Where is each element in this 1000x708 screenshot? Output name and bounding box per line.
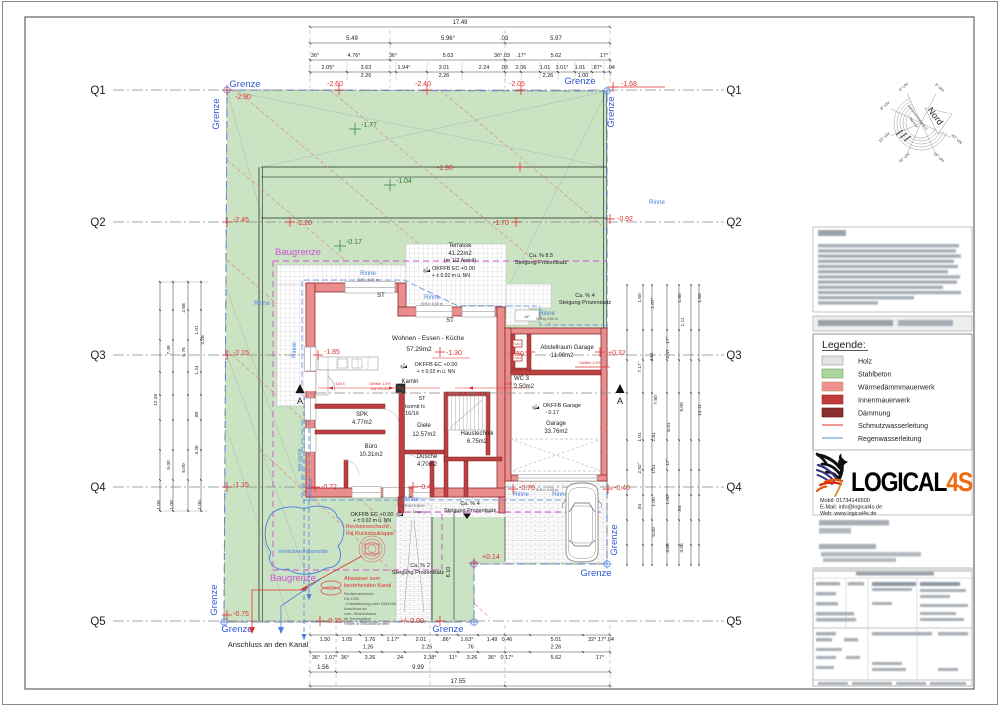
svg-text:3.26: 3.26 bbox=[467, 655, 478, 661]
svg-text:SW DN100: SW DN100 bbox=[371, 387, 390, 391]
svg-text:WC 3: WC 3 bbox=[514, 376, 530, 382]
svg-text:(m 1/2 Anteil): (m 1/2 Anteil) bbox=[444, 258, 477, 264]
svg-text:1.94°: 1.94° bbox=[398, 65, 411, 71]
svg-text:36°: 36° bbox=[488, 655, 496, 661]
svg-text:1.00: 1.00 bbox=[651, 497, 657, 507]
svg-text:+0.32: +0.32 bbox=[608, 350, 626, 357]
svg-text:Rinne: Rinne bbox=[360, 271, 376, 277]
svg-text:LOGICAL4S: LOGICAL4S bbox=[851, 467, 972, 497]
svg-text:Steigung Prozentsatz: Steigung Prozentsatz bbox=[444, 508, 497, 514]
svg-text:1.50: 1.50 bbox=[677, 293, 683, 303]
svg-text:2.68: 2.68 bbox=[181, 303, 187, 313]
svg-text:1.01: 1.01 bbox=[637, 432, 643, 442]
svg-text:Höhen in Örtlichkeit prüfen: Höhen in Örtlichkeit prüfen bbox=[344, 622, 389, 626]
svg-text:Rinne: Rinne bbox=[403, 497, 419, 503]
svg-text:1.07°: 1.07° bbox=[650, 297, 656, 308]
svg-text:33.76m2: 33.76m2 bbox=[544, 429, 568, 435]
svg-text:36°: 36° bbox=[312, 655, 320, 661]
svg-text:-2.40: -2.40 bbox=[415, 81, 431, 88]
svg-text:4.76°: 4.76° bbox=[348, 53, 361, 59]
svg-text:7.49: 7.49 bbox=[166, 345, 172, 355]
svg-text:Q3: Q3 bbox=[90, 350, 105, 362]
svg-text:Mobil: 01734146500: Mobil: 01734146500 bbox=[820, 498, 870, 504]
svg-text:-2.20: -2.20 bbox=[296, 220, 312, 227]
svg-text:1.07°: 1.07° bbox=[325, 655, 338, 661]
svg-text:Revisionsschacht: Revisionsschacht bbox=[344, 592, 374, 596]
svg-text:- Entwässerung nach DIN1638 -: - Entwässerung nach DIN1638 - bbox=[344, 602, 399, 606]
svg-text:SAN 5: SAN 5 bbox=[335, 382, 344, 386]
svg-text:6.76: 6.76 bbox=[181, 347, 187, 357]
svg-text:-2.15: -2.15 bbox=[233, 350, 249, 357]
svg-text:Ca. % 2: Ca. % 2 bbox=[410, 563, 430, 569]
svg-text:-0.49: -0.49 bbox=[419, 484, 435, 491]
svg-text:B.R.i= 0.00 m: B.R.i= 0.00 m bbox=[421, 302, 442, 306]
svg-text:SPK: SPK bbox=[356, 412, 368, 418]
svg-text:Wärmedämmmauerwerk: Wärmedämmmauerwerk bbox=[858, 385, 935, 392]
svg-text:Ca. % 8.5: Ca. % 8.5 bbox=[529, 253, 553, 259]
svg-text:1.24: 1.24 bbox=[194, 365, 200, 375]
svg-text:Abstellraum Garage: Abstellraum Garage bbox=[540, 345, 594, 351]
svg-text:1.76: 1.76 bbox=[365, 637, 376, 643]
svg-text:36°: 36° bbox=[311, 53, 319, 59]
svg-text:+/- 0.00: +/- 0.00 bbox=[400, 618, 424, 625]
svg-text:Garage: Garage bbox=[546, 421, 567, 427]
svg-text:Ca. % 4: Ca. % 4 bbox=[460, 501, 480, 507]
svg-text:Rinne: Rinne bbox=[649, 200, 665, 206]
svg-text:17.49: 17.49 bbox=[452, 20, 468, 26]
svg-text:Grenze: Grenze bbox=[229, 79, 260, 90]
svg-text:Innenmauerwerk: Innenmauerwerk bbox=[858, 398, 911, 405]
svg-text:Baugrenze: Baugrenze bbox=[275, 247, 321, 258]
svg-text:6.75m2: 6.75m2 bbox=[467, 439, 488, 445]
svg-text:Stahlbeton: Stahlbeton bbox=[858, 372, 892, 379]
svg-text:1.00: 1.00 bbox=[156, 500, 162, 510]
svg-text:Gefälle 1.5%: Gefälle 1.5% bbox=[579, 361, 601, 365]
svg-text:Anschluss an den Kanal: Anschluss an den Kanal bbox=[228, 640, 309, 649]
svg-text:bestehenden Kanal: bestehenden Kanal bbox=[344, 583, 391, 589]
svg-text:10.31m2: 10.31m2 bbox=[359, 452, 383, 458]
svg-text:5.49: 5.49 bbox=[346, 36, 358, 42]
svg-text:16/16: 16/16 bbox=[405, 411, 419, 417]
svg-text:-0.17: -0.17 bbox=[346, 239, 362, 246]
svg-text:1.51: 1.51 bbox=[651, 464, 657, 474]
svg-text:Q1: Q1 bbox=[726, 85, 741, 97]
svg-text:A: A bbox=[617, 396, 623, 406]
svg-text:.80: .80 bbox=[194, 411, 200, 418]
svg-text:Gefälle 1.5%: Gefälle 1.5% bbox=[369, 382, 391, 386]
svg-text:-1.30: -1.30 bbox=[446, 350, 462, 357]
svg-text:.03: .03 bbox=[500, 36, 509, 42]
svg-text:4.70m2: 4.70m2 bbox=[417, 462, 438, 468]
svg-text:5.00: 5.00 bbox=[166, 460, 172, 470]
svg-text:-2.05: -2.05 bbox=[509, 81, 525, 88]
svg-text:36°.03: 36°.03 bbox=[494, 53, 510, 59]
svg-text:Q1: Q1 bbox=[90, 85, 105, 97]
svg-text:5.62: 5.62 bbox=[551, 53, 562, 59]
svg-text:2.01: 2.01 bbox=[416, 637, 427, 643]
svg-text:-1.90: -1.90 bbox=[437, 165, 453, 172]
svg-text:+ ± 0.02 m ü. NN: + ± 0.02 m ü. NN bbox=[432, 273, 470, 279]
svg-text:3.01: 3.01 bbox=[439, 65, 450, 71]
svg-text:SAN: SAN bbox=[514, 342, 520, 346]
svg-text:-1.85: -1.85 bbox=[324, 349, 340, 356]
svg-text:Diele: Diele bbox=[417, 423, 431, 429]
svg-text:Isomit Ic: Isomit Ic bbox=[405, 404, 426, 410]
svg-text:ST: ST bbox=[377, 293, 385, 299]
svg-text:.03: .03 bbox=[500, 65, 508, 71]
svg-text:Q4: Q4 bbox=[726, 482, 742, 494]
svg-text:Terrasse: Terrasse bbox=[448, 243, 472, 249]
svg-text:7.90: 7.90 bbox=[653, 395, 659, 405]
svg-text:1.50: 1.50 bbox=[637, 293, 643, 303]
svg-text:OKFFB EC +0.00: OKFFB EC +0.00 bbox=[432, 266, 475, 272]
svg-text:1.00: 1.00 bbox=[578, 73, 589, 79]
svg-text:Steigung Prozentsatz: Steigung Prozentsatz bbox=[392, 570, 445, 576]
svg-text:-1.04: -1.04 bbox=[396, 178, 412, 185]
svg-text:3.06: 3.06 bbox=[679, 543, 685, 553]
svg-text:1.01: 1.01 bbox=[194, 325, 200, 335]
svg-text:5.00: 5.00 bbox=[181, 463, 187, 473]
svg-text:5.96°: 5.96° bbox=[441, 36, 456, 42]
svg-text:1.00: 1.00 bbox=[665, 495, 671, 505]
svg-text:B.R.i= 0.00 m: B.R.i= 0.00 m bbox=[536, 317, 557, 321]
svg-text:Rinne: Rinne bbox=[254, 301, 270, 307]
svg-text:.94: .94 bbox=[637, 503, 643, 510]
svg-text:Haustechnik: Haustechnik bbox=[460, 431, 494, 437]
svg-text:Q5: Q5 bbox=[726, 616, 741, 628]
svg-text:2.26: 2.26 bbox=[422, 645, 433, 651]
svg-text:.87°: .87° bbox=[592, 65, 602, 71]
svg-text:17°: 17° bbox=[596, 655, 604, 661]
svg-text:DN 1000: DN 1000 bbox=[344, 597, 359, 601]
svg-text:ST: ST bbox=[446, 318, 454, 324]
svg-text:-0.70: -0.70 bbox=[519, 485, 535, 492]
svg-text:Grenze: Grenze bbox=[221, 624, 252, 635]
svg-text:OKFFB EC +0.00: OKFFB EC +0.00 bbox=[415, 362, 458, 368]
svg-text:1.63°: 1.63° bbox=[461, 637, 474, 643]
svg-text:Grenze: Grenze bbox=[609, 524, 620, 555]
svg-text:-1.15: -1.15 bbox=[233, 482, 249, 489]
svg-text:im Trennsystem: im Trennsystem bbox=[344, 617, 371, 621]
svg-text:1.01°: 1.01° bbox=[556, 65, 569, 71]
svg-text:-0.72: -0.72 bbox=[321, 484, 337, 491]
svg-text:mit Rückstauklappe: mit Rückstauklappe bbox=[346, 531, 394, 537]
svg-text:A: A bbox=[297, 396, 303, 406]
svg-text:5.01: 5.01 bbox=[551, 637, 562, 643]
svg-text:Büro: Büro bbox=[365, 444, 378, 450]
svg-text:-0.35: -0.35 bbox=[326, 618, 342, 625]
svg-text:B.R.üH 0.00 m: B.R.üH 0.00 m bbox=[402, 504, 425, 508]
svg-text:36°: 36° bbox=[341, 655, 349, 661]
svg-text:5.63: 5.63 bbox=[443, 53, 454, 59]
svg-text:9.00: 9.00 bbox=[679, 402, 685, 412]
svg-text:Grenze: Grenze bbox=[209, 584, 220, 615]
svg-text:1.01: 1.01 bbox=[540, 65, 551, 71]
svg-text:Rinne: Rinne bbox=[292, 342, 298, 358]
svg-text:AP: AP bbox=[524, 314, 530, 319]
svg-text:2.26: 2.26 bbox=[439, 73, 450, 79]
svg-text:1.00: 1.00 bbox=[169, 500, 175, 510]
svg-text:Regenwasserleitung: Regenwasserleitung bbox=[858, 436, 922, 443]
svg-text:Dusche: Dusche bbox=[417, 454, 438, 460]
svg-text:1.17°: 1.17° bbox=[387, 637, 400, 643]
svg-text:Eingang: Eingang bbox=[413, 510, 426, 514]
svg-text:Q5: Q5 bbox=[90, 616, 105, 628]
svg-text:B.R.i= 0.00 m: B.R.i= 0.00 m bbox=[357, 278, 378, 282]
svg-text:Dämmung: Dämmung bbox=[858, 411, 890, 418]
svg-text:1.01: 1.01 bbox=[575, 65, 586, 71]
svg-text:Wohnen - Essen - Küche: Wohnen - Essen - Küche bbox=[392, 335, 465, 342]
svg-text:Grenze: Grenze bbox=[432, 624, 463, 635]
svg-text:24: 24 bbox=[397, 655, 403, 661]
svg-text:3.26: 3.26 bbox=[365, 655, 376, 661]
svg-text:4.77m2: 4.77m2 bbox=[352, 420, 373, 426]
svg-text:Q2: Q2 bbox=[726, 217, 741, 229]
svg-text:.17°: .17° bbox=[516, 53, 526, 59]
svg-text:.04: .04 bbox=[607, 65, 615, 71]
svg-text:- 0.17: - 0.17 bbox=[545, 410, 559, 416]
svg-text:1.50: 1.50 bbox=[697, 293, 703, 303]
svg-text:Anschluss an: Anschluss an bbox=[344, 607, 367, 611]
svg-text:17.55: 17.55 bbox=[450, 679, 466, 685]
svg-text:ST: ST bbox=[418, 396, 426, 402]
svg-text:Versickerungsmulde: Versickerungsmulde bbox=[278, 549, 328, 555]
svg-text:17°: 17° bbox=[665, 458, 671, 465]
svg-text:5.97: 5.97 bbox=[550, 36, 562, 42]
svg-text:2.24: 2.24 bbox=[479, 65, 490, 71]
svg-text:2.26: 2.26 bbox=[361, 73, 372, 79]
svg-text:-1.77: -1.77 bbox=[361, 122, 377, 129]
svg-text:-0.92: -0.92 bbox=[617, 216, 633, 223]
svg-text:1.50: 1.50 bbox=[320, 637, 331, 643]
svg-text:11.00m2: 11.00m2 bbox=[551, 353, 575, 359]
svg-text:Revisionsschacht: Revisionsschacht bbox=[346, 524, 389, 530]
svg-text:-0.75: -0.75 bbox=[233, 611, 249, 618]
svg-text:OKFFB Garage: OKFFB Garage bbox=[543, 403, 581, 409]
svg-text:Grenze: Grenze bbox=[580, 568, 611, 579]
svg-text:Abwasser zum: Abwasser zum bbox=[344, 576, 380, 582]
svg-text:Grenze: Grenze bbox=[211, 98, 222, 129]
svg-text:1.49: 1.49 bbox=[487, 637, 498, 643]
svg-text:2.92°: 2.92° bbox=[637, 462, 643, 473]
svg-text:Ca. % 4: Ca. % 4 bbox=[575, 293, 595, 299]
svg-text:Web: www.logical4s.de: Web: www.logical4s.de bbox=[820, 511, 876, 517]
svg-text:0.17°: 0.17° bbox=[501, 655, 514, 661]
svg-text:Steigung Prozentsatz: Steigung Prozentsatz bbox=[559, 300, 612, 306]
svg-text:-1.70: -1.70 bbox=[493, 220, 509, 227]
svg-text:17°: 17° bbox=[665, 336, 671, 343]
svg-text:11°: 11° bbox=[449, 655, 457, 661]
svg-text:E-Mail: info@logical4s.de: E-Mail: info@logical4s.de bbox=[820, 505, 882, 511]
svg-text:RW DN100: RW DN100 bbox=[297, 448, 302, 471]
svg-text:+0.14: +0.14 bbox=[482, 554, 500, 561]
svg-text:vorh. Straßenkanal: vorh. Straßenkanal bbox=[344, 612, 376, 616]
svg-text:Legende:: Legende: bbox=[822, 339, 866, 351]
svg-text:-2.90: -2.90 bbox=[235, 94, 251, 101]
svg-text:Rinne: Rinne bbox=[513, 492, 529, 498]
svg-text:SW DN100: SW DN100 bbox=[308, 478, 313, 501]
svg-text:+ ± 0.02 m ü. NN: + ± 0.02 m ü. NN bbox=[417, 369, 455, 375]
svg-text:3.63: 3.63 bbox=[361, 65, 372, 71]
svg-text:Rinne: Rinne bbox=[424, 295, 440, 301]
svg-text:12.57m2: 12.57m2 bbox=[412, 432, 436, 438]
svg-text:1.26: 1.26 bbox=[363, 645, 374, 651]
svg-text:5.00: 5.00 bbox=[651, 527, 657, 537]
svg-text:2.26: 2.26 bbox=[551, 645, 562, 651]
svg-text:-0.40: -0.40 bbox=[614, 485, 630, 492]
svg-text:2.50m2: 2.50m2 bbox=[514, 384, 535, 390]
svg-text:Q2: Q2 bbox=[90, 217, 105, 229]
svg-text:2.05°: 2.05° bbox=[322, 65, 335, 71]
svg-text:17°: 17° bbox=[600, 53, 608, 59]
svg-text:2.47: 2.47 bbox=[665, 349, 671, 359]
svg-text:Grenze: Grenze bbox=[606, 96, 617, 127]
svg-text:.76: .76 bbox=[466, 645, 474, 651]
svg-text:5.62: 5.62 bbox=[551, 655, 562, 661]
svg-text:1.05: 1.05 bbox=[342, 637, 353, 643]
svg-text:-1.50: -1.50 bbox=[508, 351, 524, 358]
svg-text:9.99: 9.99 bbox=[412, 665, 424, 671]
svg-text:Holz: Holz bbox=[858, 359, 873, 366]
svg-text:.86°: .86° bbox=[441, 637, 451, 643]
svg-text:57.29m2: 57.29m2 bbox=[406, 346, 432, 353]
svg-text:6.01: 6.01 bbox=[666, 422, 672, 432]
svg-text:0.46: 0.46 bbox=[502, 637, 513, 643]
svg-text:Schmutzwasserleitung: Schmutzwasserleitung bbox=[858, 423, 928, 430]
svg-text:12.11: 12.11 bbox=[697, 404, 703, 416]
svg-text:6.10: 6.10 bbox=[446, 567, 452, 578]
svg-text:Q3: Q3 bbox=[726, 350, 741, 362]
svg-text:1.56: 1.56 bbox=[317, 665, 329, 671]
svg-text:2.26: 2.26 bbox=[543, 73, 554, 79]
svg-text:-2.60: -2.60 bbox=[327, 81, 343, 88]
svg-text:1.00: 1.00 bbox=[197, 500, 203, 510]
svg-text:Q4: Q4 bbox=[90, 482, 106, 494]
svg-text:3.26: 3.26 bbox=[194, 445, 200, 455]
svg-text:41.22m2: 41.22m2 bbox=[448, 251, 472, 257]
svg-text:.94: .94 bbox=[677, 505, 683, 512]
svg-text:-2.45: -2.45 bbox=[233, 217, 249, 224]
svg-text:12.49: 12.49 bbox=[153, 394, 159, 406]
svg-text:Steigung Prozentsatz: Steigung Prozentsatz bbox=[515, 260, 568, 266]
svg-text:Kamin: Kamin bbox=[401, 379, 418, 385]
svg-text:7.17°: 7.17° bbox=[637, 361, 643, 372]
svg-text:1.11: 1.11 bbox=[680, 317, 686, 326]
